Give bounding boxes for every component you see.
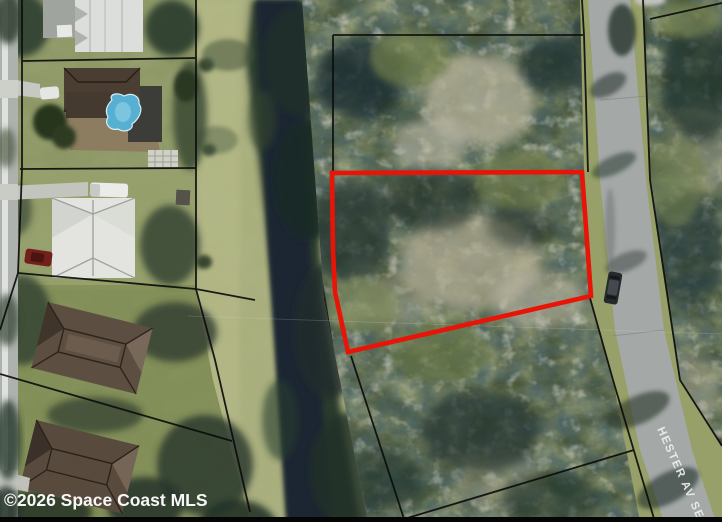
letterbox-bar <box>0 517 722 522</box>
shed-roof <box>57 25 73 38</box>
aerial-parcel-map: HESTER AV SE ©2026 Space Coast MLS <box>0 0 722 522</box>
backyard-shed <box>176 190 191 206</box>
patio-grid <box>148 150 178 167</box>
aerial-map-canvas: HESTER AV SE ©2026 Space Coast MLS <box>0 0 722 522</box>
mls-watermark: ©2026 Space Coast MLS <box>4 490 208 510</box>
white-car <box>40 86 60 100</box>
